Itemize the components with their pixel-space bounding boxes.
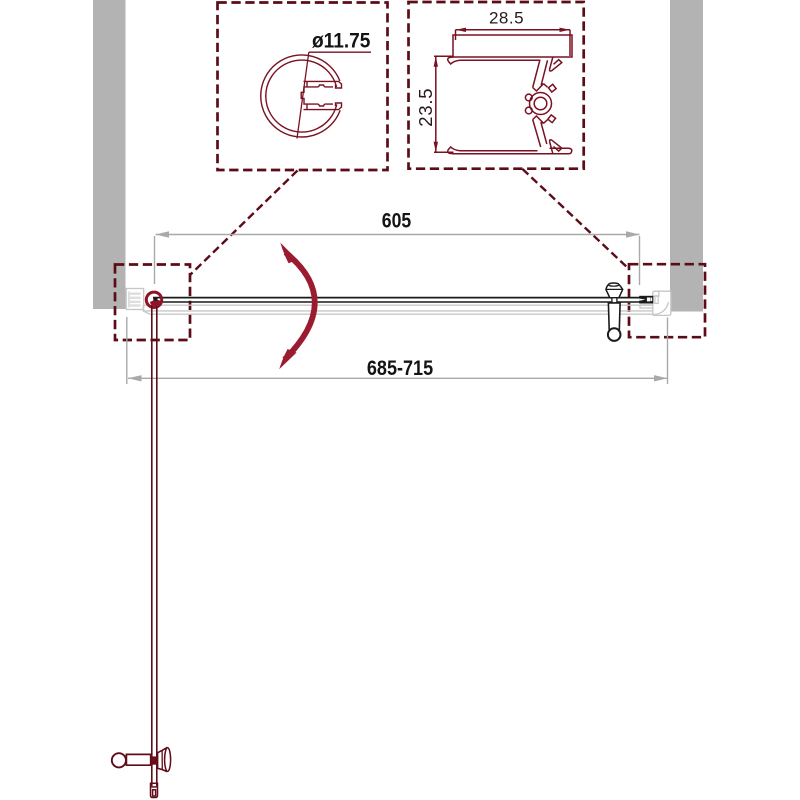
- svg-text:ø11.75: ø11.75: [312, 30, 370, 53]
- svg-text:605: 605: [382, 209, 411, 233]
- svg-text:28.5: 28.5: [489, 9, 524, 28]
- svg-text:685-715: 685-715: [367, 357, 433, 381]
- svg-text:23.5: 23.5: [415, 88, 436, 127]
